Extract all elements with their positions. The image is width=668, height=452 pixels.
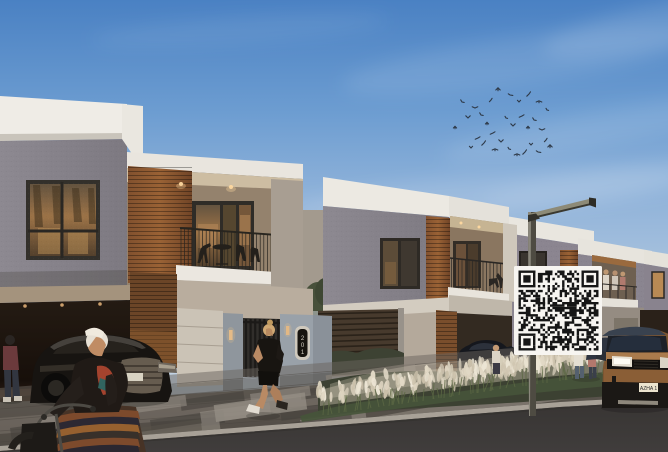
svg-text:AZHA 1: AZHA 1 <box>640 386 657 392</box>
